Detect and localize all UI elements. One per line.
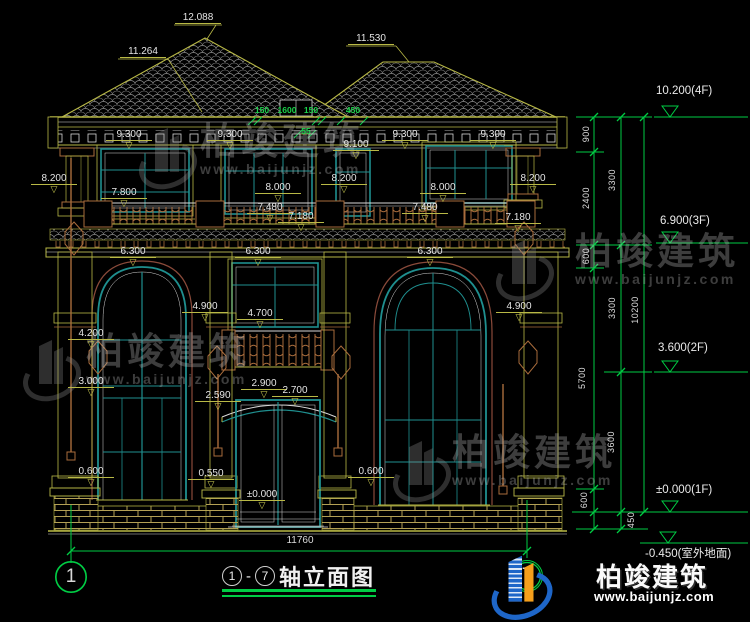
title-axis-from-bubble: 1 [222,566,242,586]
third-floor-balustrade [84,201,535,227]
eave-band [48,117,567,148]
arched-window-left [92,261,192,500]
third-floor-columns [58,145,542,216]
title-dash: - [246,568,251,585]
roof [50,38,565,117]
bottom-dim-label: 11760 [286,535,313,546]
title-underline [222,589,376,592]
brand-logo-icon [491,555,552,616]
pent-roof-band [46,229,569,257]
brand-url: www.baijunjz.com [594,589,714,604]
title-underline-2 [222,595,376,597]
cad-linework [0,0,750,622]
elevation-drawing: 柏竣建筑 www.baijunjz.com 柏竣建筑 www.baijunjz.… [0,0,750,622]
drawing-title: 1 - 7 轴立面图 [222,560,375,592]
entry-door [222,400,336,527]
title-text: 轴立面图 [279,560,375,592]
dimension-chains [572,106,748,543]
second-floor-middle [222,259,334,370]
axis-bubble-1: 1 [55,561,87,593]
arched-window-right [374,262,492,505]
title-axis-to-bubble: 7 [255,566,275,586]
columns-lower [52,252,564,488]
